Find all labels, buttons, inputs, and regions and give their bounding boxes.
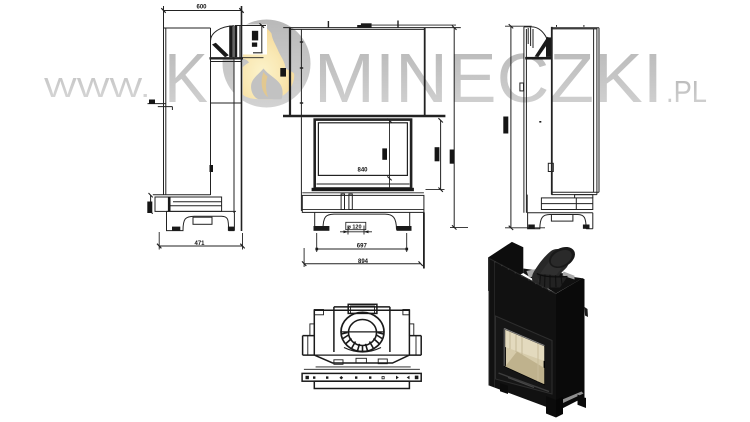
svg-text:471: 471 [195,241,206,247]
svg-text:600: 600 [197,5,208,11]
svg-text:894: 894 [358,259,369,265]
svg-text:K: K [164,39,208,117]
svg-text:.PL: .PL [666,74,707,109]
svg-text:WWW.: WWW. [44,72,150,103]
svg-text:697: 697 [357,243,368,249]
svg-text:840: 840 [358,167,369,173]
svg-text:MINECZKI: MINECZKI [314,39,663,117]
